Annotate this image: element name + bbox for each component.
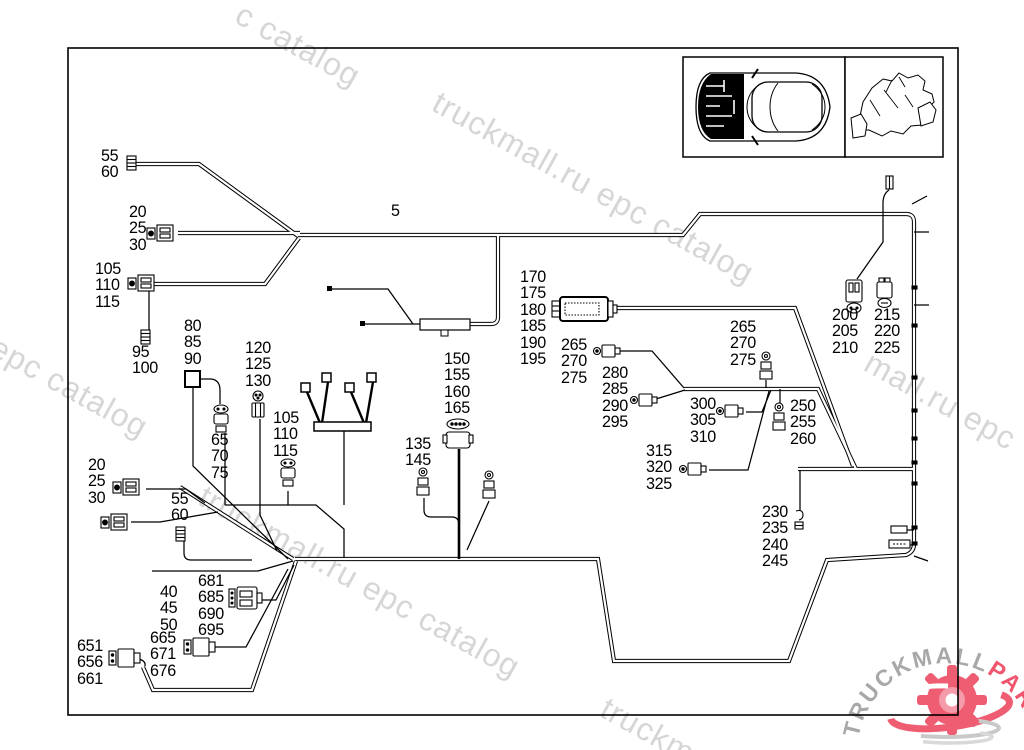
part-number: 60 <box>171 507 188 523</box>
group-55-60: 5560 <box>101 148 118 181</box>
part-number: 295 <box>602 414 628 430</box>
group-280-285-290-295: 280285290295 <box>602 365 628 431</box>
group-95-100: 95100 <box>132 344 158 377</box>
parts-diagram-page: c catalogtruckmall.ru epc catalogl epc c… <box>0 0 1024 750</box>
part-number: 60 <box>101 164 118 180</box>
part-number: 260 <box>790 431 816 447</box>
part-number: 195 <box>520 351 546 367</box>
part-number: 30 <box>129 237 146 253</box>
part-number: 310 <box>690 429 716 445</box>
group-55-60-2: 5560 <box>171 491 188 524</box>
part-number: 661 <box>77 671 103 687</box>
part-number: 130 <box>245 373 271 389</box>
group-105-110-115-2: 105110115 <box>273 410 299 459</box>
group-80-85-90: 808590 <box>184 318 201 367</box>
part-number: 5 <box>391 203 400 219</box>
part-number: 695 <box>198 622 224 638</box>
group-250-255-260: 250255260 <box>790 398 816 447</box>
group-135-145: 135145 <box>405 436 431 469</box>
group-150-155-160-165: 150155160165 <box>444 351 470 417</box>
group-20-25-30-2: 202530 <box>88 457 105 506</box>
part-number: 145 <box>405 452 431 468</box>
group-651-656-661: 651656661 <box>77 638 103 687</box>
part-number: 225 <box>874 340 900 356</box>
part-number-labels: 5560202530105110115808590951001201251301… <box>0 0 1024 750</box>
group-215-220-225: 215220225 <box>874 307 900 356</box>
group-665-671-676: 665671676 <box>150 630 176 679</box>
part-number: 115 <box>273 443 299 459</box>
group-300-305-310: 300305310 <box>690 396 716 445</box>
group-681-685-690-695: 681685690695 <box>198 573 224 639</box>
part-number: 275 <box>730 352 756 368</box>
part-number: 30 <box>88 490 105 506</box>
group-230-235-240-245: 230235240245 <box>762 504 788 570</box>
part-number: 165 <box>444 400 470 416</box>
part-number: 275 <box>561 370 587 386</box>
group-65-70-75: 657075 <box>211 432 228 481</box>
group-265-270-275: 265270275 <box>561 337 587 386</box>
part-number: 210 <box>832 340 858 356</box>
group-120-125-130: 120125130 <box>245 340 271 389</box>
group-315-320-325: 315320325 <box>646 443 672 492</box>
group-40-45-50: 404550 <box>160 584 177 633</box>
group-105-110-115: 105110115 <box>95 261 121 310</box>
group-265-270-275-2: 265270275 <box>730 319 756 368</box>
part-number: 90 <box>184 351 201 367</box>
callout-5: 5 <box>391 203 400 219</box>
group-200-205-210: 200205210 <box>832 307 858 356</box>
part-number: 115 <box>95 294 121 310</box>
part-number: 325 <box>646 476 672 492</box>
group-170-175-180-185-190-195: 170175180185190195 <box>520 269 546 367</box>
part-number: 100 <box>132 360 158 376</box>
part-number: 75 <box>211 465 228 481</box>
part-number: 676 <box>150 663 176 679</box>
part-number: 245 <box>762 553 788 569</box>
group-20-25-30: 202530 <box>129 204 146 253</box>
